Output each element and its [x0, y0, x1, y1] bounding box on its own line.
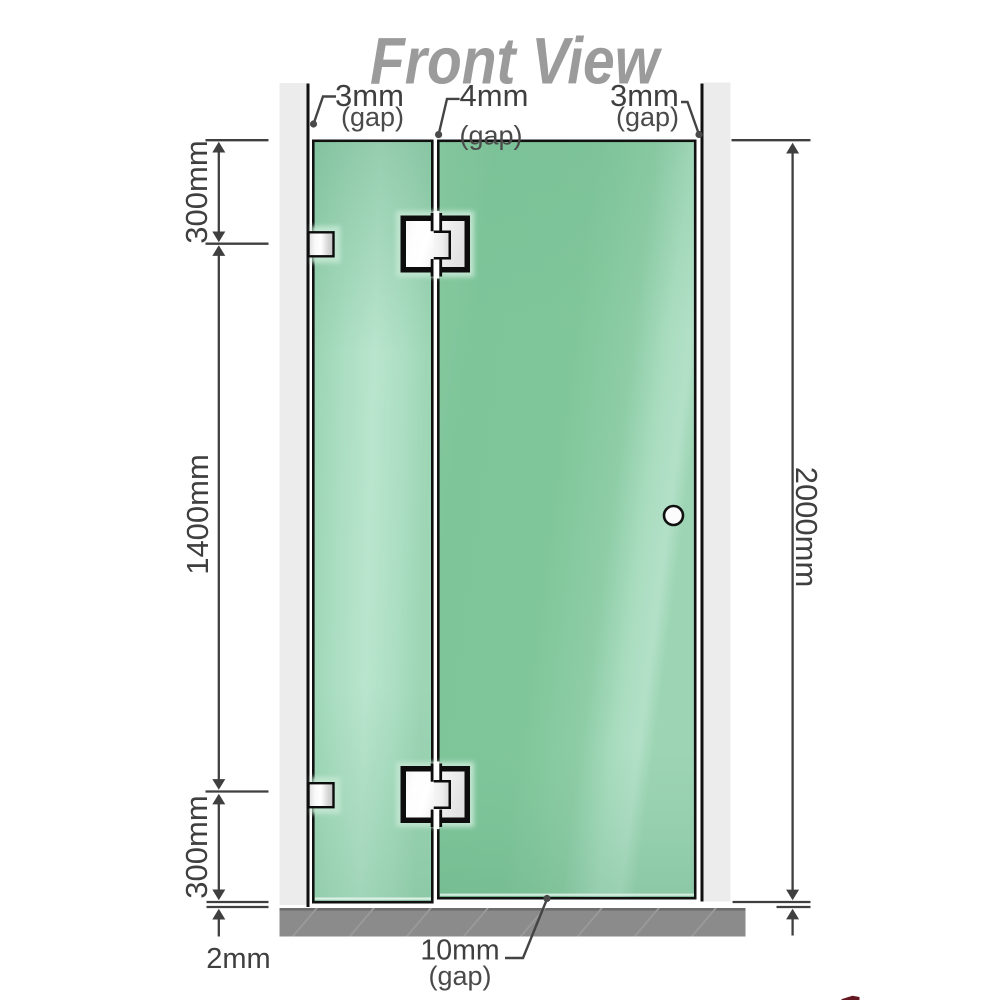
svg-text:(gap): (gap): [459, 121, 522, 151]
svg-text:4mm: 4mm: [460, 78, 529, 113]
svg-text:300mm: 300mm: [179, 140, 214, 243]
svg-text:(gap): (gap): [616, 102, 679, 132]
svg-text:(gap): (gap): [428, 961, 491, 991]
svg-text:2mm: 2mm: [206, 943, 270, 975]
svg-text:2000mm: 2000mm: [789, 467, 824, 588]
svg-text:300mm: 300mm: [179, 795, 214, 898]
svg-text:(gap): (gap): [341, 102, 404, 132]
svg-text:1400mm: 1400mm: [180, 454, 215, 575]
